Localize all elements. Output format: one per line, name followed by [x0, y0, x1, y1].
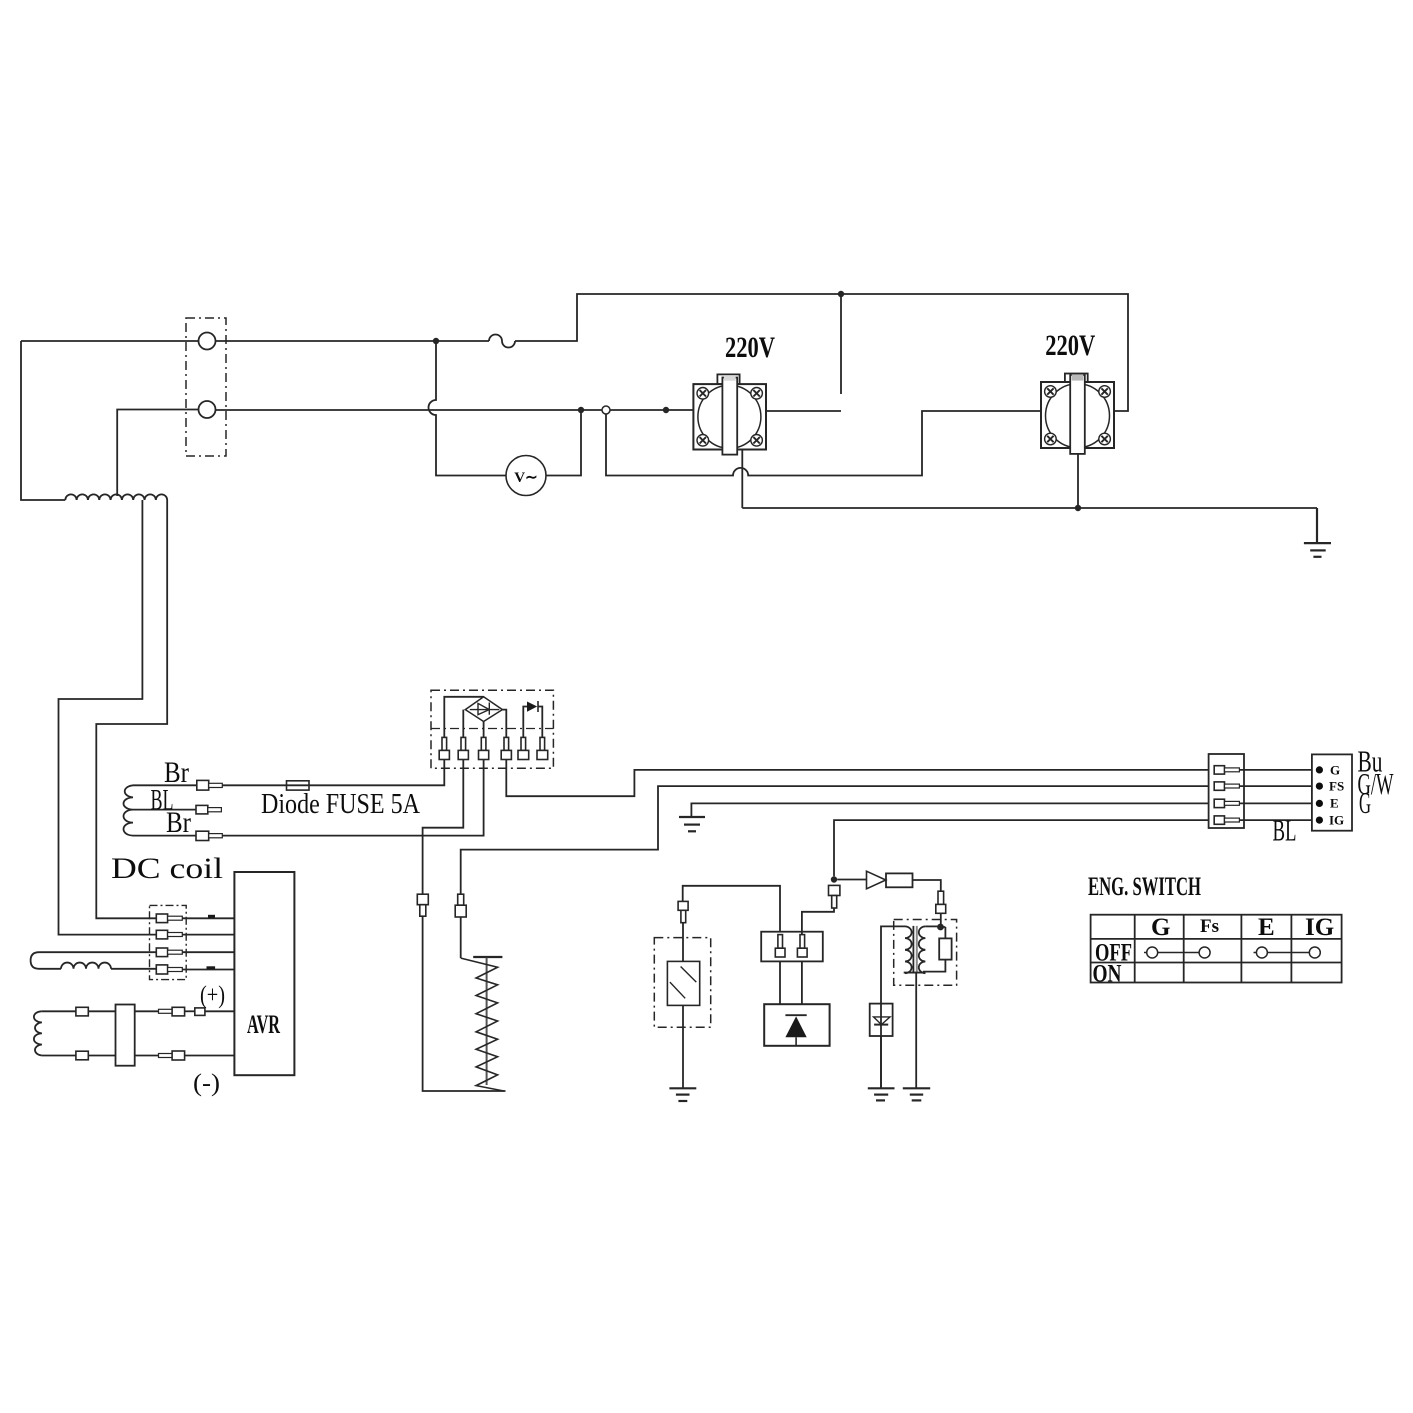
svg-text:Diode FUSE 5A: Diode FUSE 5A — [261, 788, 420, 820]
svg-text:E: E — [1258, 914, 1275, 941]
svg-text:G: G — [1359, 785, 1371, 820]
svg-text:220V: 220V — [725, 331, 775, 364]
svg-text:(-): (-) — [193, 1070, 220, 1097]
svg-text:ON: ON — [1093, 961, 1122, 988]
svg-text:DC coil: DC coil — [111, 852, 223, 885]
svg-text:IG: IG — [1305, 914, 1334, 941]
svg-text:G: G — [1151, 914, 1170, 941]
svg-text:Fs: Fs — [1200, 916, 1219, 937]
svg-text:ENG. SWITCH: ENG. SWITCH — [1088, 872, 1201, 901]
svg-text:IG: IG — [1329, 813, 1344, 828]
svg-text:Br: Br — [166, 806, 191, 839]
svg-text:BL: BL — [1273, 813, 1297, 848]
svg-text:G: G — [1330, 763, 1340, 778]
svg-text:220V: 220V — [1045, 329, 1095, 362]
svg-text:AVR: AVR — [247, 1010, 280, 1039]
svg-text:FS: FS — [1329, 779, 1344, 794]
svg-text:E: E — [1330, 796, 1339, 811]
svg-text:(+): (+) — [200, 982, 225, 1009]
svg-text:V∼: V∼ — [514, 470, 537, 486]
